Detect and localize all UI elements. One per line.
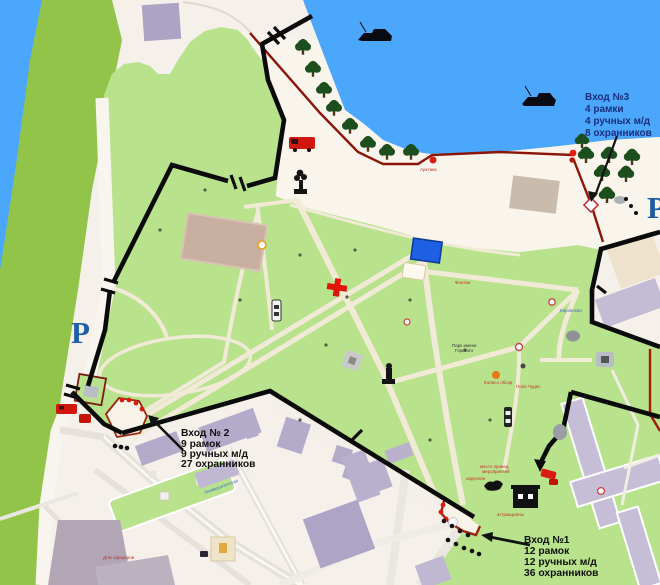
svg-text:Колесо обозр.: Колесо обозр. (484, 380, 514, 385)
svg-text:Кировская: Кировская (560, 308, 582, 313)
svg-text:Горького: Горького (455, 348, 474, 353)
svg-text:4 ручных м/д: 4 ручных м/д (585, 116, 651, 127)
svg-text:12 ручных м/д: 12 ручных м/д (524, 557, 597, 568)
svg-text:4 рамки: 4 рамки (585, 104, 624, 115)
svg-text:Вход №1: Вход №1 (524, 535, 570, 546)
svg-text:Р: Р (71, 315, 90, 350)
svg-text:мероприятий: мероприятий (482, 468, 510, 474)
svg-text:8 охранников: 8 охранников (585, 128, 652, 139)
svg-text:Фонтан: Фонтан (455, 280, 471, 285)
svg-text:Дом офицеров: Дом офицеров (103, 555, 135, 560)
svg-text:36 охранников: 36 охранников (524, 568, 599, 579)
svg-text:Вход №3: Вход №3 (585, 92, 630, 103)
svg-text:карусели: карусели (466, 476, 485, 481)
svg-text:аттракционы: аттракционы (497, 512, 524, 517)
svg-text:12 рамок: 12 рамок (524, 546, 570, 557)
svg-text:Р: Р (647, 190, 660, 225)
svg-text:27 охранников: 27 охранников (181, 459, 256, 470)
svg-text:Арктика: Арктика (420, 167, 437, 172)
svg-text:Вход № 2: Вход № 2 (181, 428, 230, 439)
svg-text:Поле Чудес: Поле Чудес (516, 384, 541, 389)
